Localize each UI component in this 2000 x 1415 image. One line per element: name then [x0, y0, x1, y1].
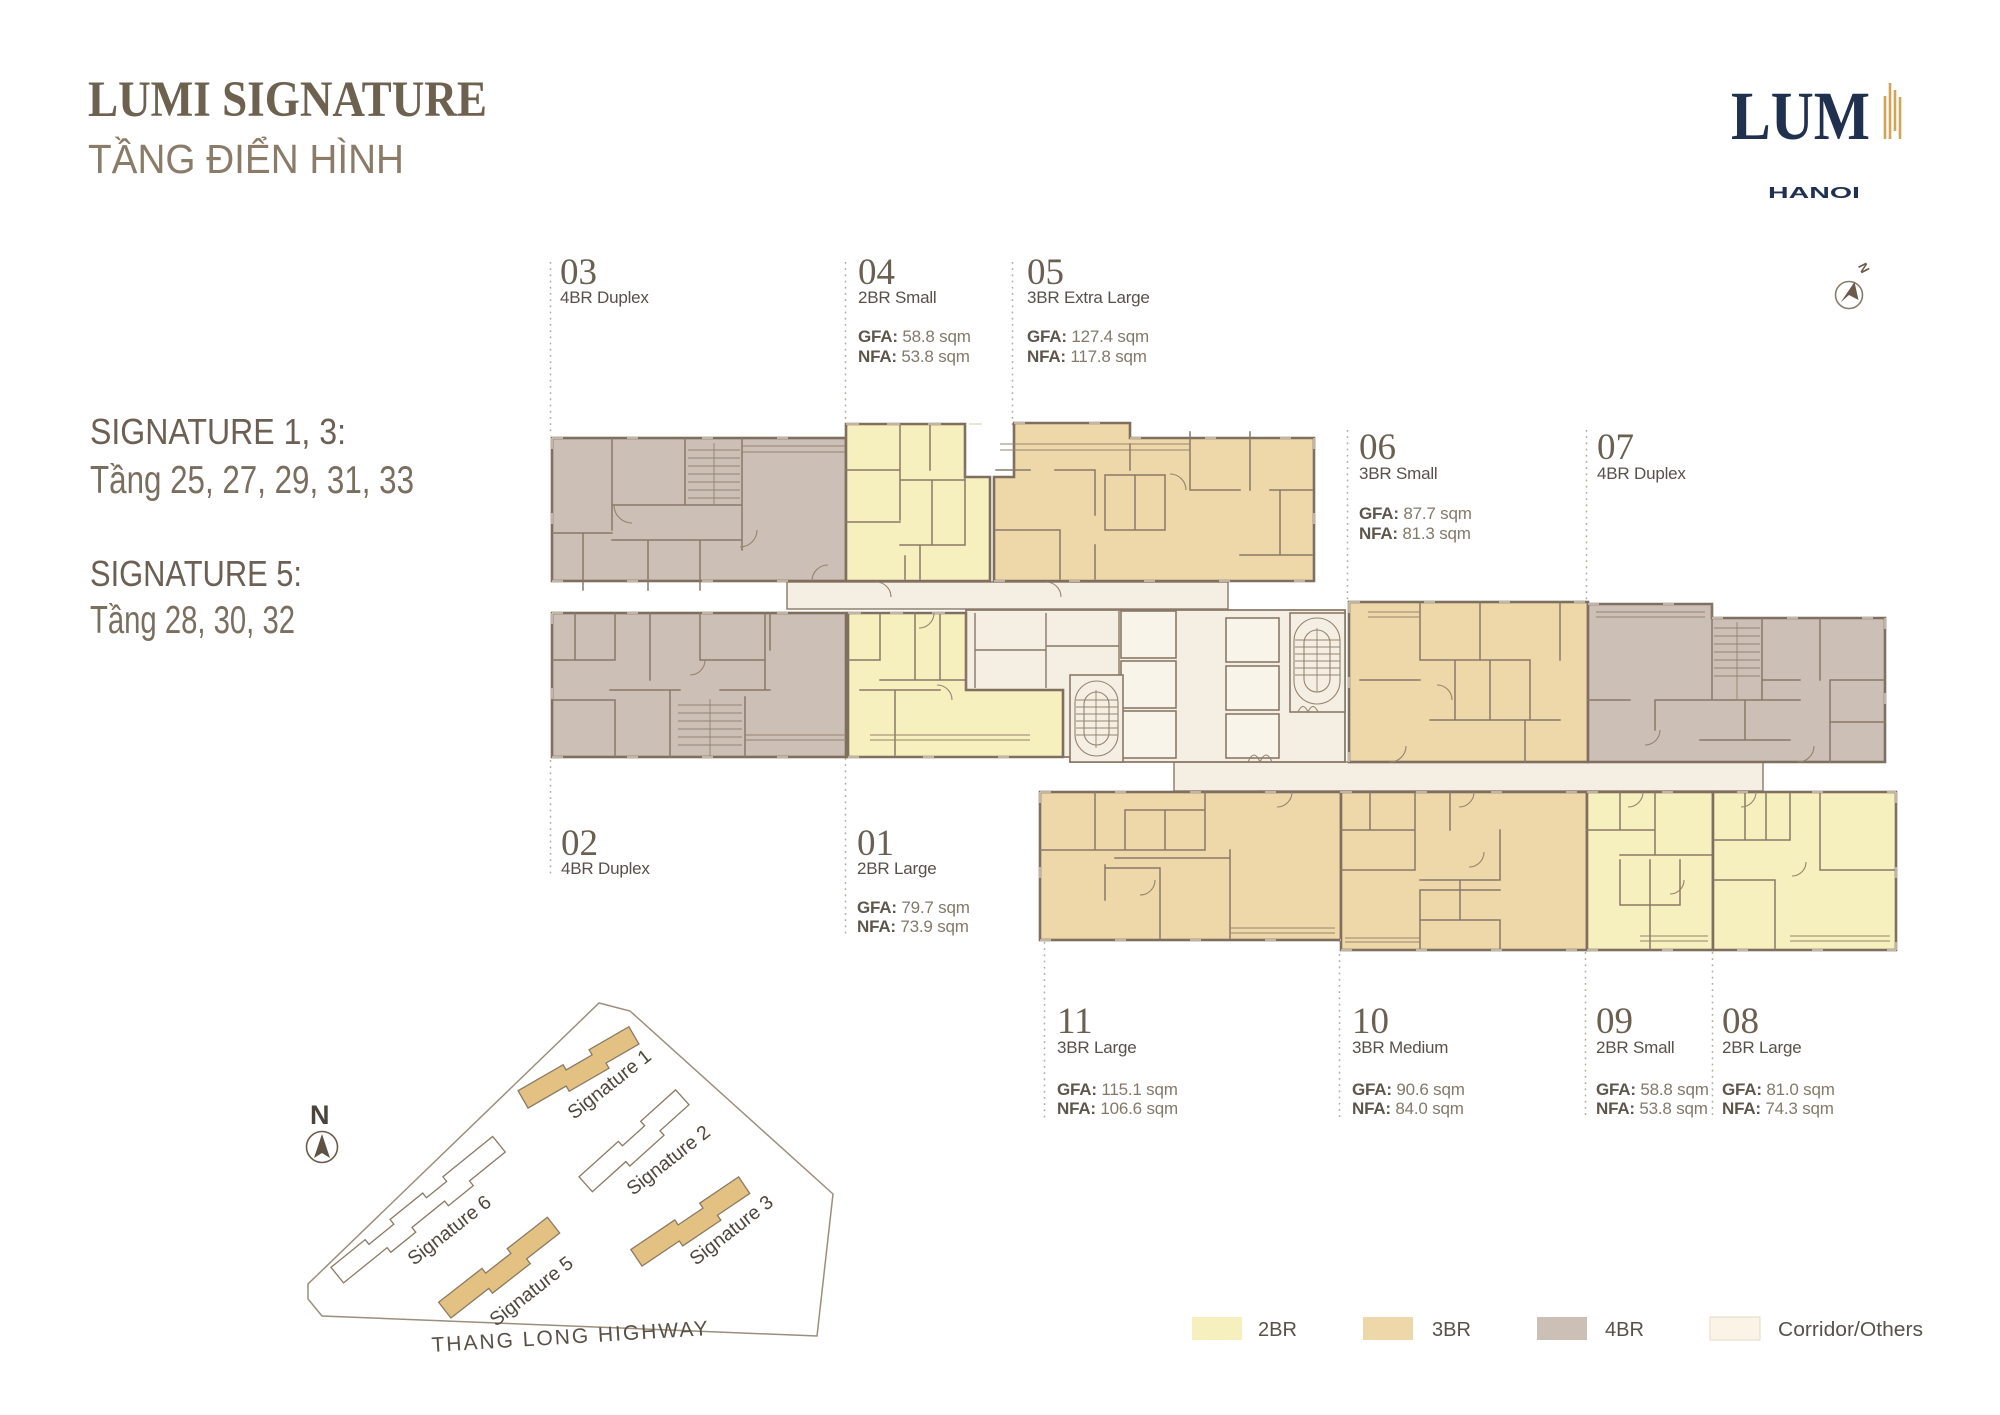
svg-text:NFA: 53.8 sqm: NFA: 53.8 sqm: [858, 347, 970, 366]
svg-text:GFA: 127.4 sqm: GFA: 127.4 sqm: [1027, 327, 1149, 346]
svg-text:01: 01: [857, 823, 894, 864]
svg-text:4BR Duplex: 4BR Duplex: [561, 859, 650, 878]
svg-text:04: 04: [858, 252, 895, 293]
svg-text:4BR: 4BR: [1605, 1319, 1644, 1341]
svg-text:SIGNATURE 1, 3:: SIGNATURE 1, 3:: [90, 411, 346, 452]
svg-text:2BR Small: 2BR Small: [1596, 1038, 1675, 1057]
svg-text:TẦNG ĐIỂN HÌNH: TẦNG ĐIỂN HÌNH: [88, 135, 404, 182]
svg-text:GFA: 90.6 sqm: GFA: 90.6 sqm: [1352, 1080, 1465, 1099]
svg-text:3BR Extra Large: 3BR Extra Large: [1027, 288, 1150, 307]
svg-text:Tầng 28, 30, 32: Tầng 28, 30, 32: [90, 599, 295, 642]
svg-text:08: 08: [1722, 1001, 1759, 1042]
svg-text:NFA: 106.6 sqm: NFA: 106.6 sqm: [1057, 1099, 1178, 1118]
svg-text:10: 10: [1352, 1001, 1389, 1042]
svg-text:GFA: 81.0 sqm: GFA: 81.0 sqm: [1722, 1080, 1835, 1099]
svg-text:06: 06: [1359, 427, 1396, 468]
svg-text:07: 07: [1597, 427, 1634, 468]
svg-text:3BR Medium: 3BR Medium: [1352, 1038, 1448, 1057]
svg-text:09: 09: [1596, 1001, 1633, 1042]
svg-text:NFA: 53.8 sqm: NFA: 53.8 sqm: [1596, 1099, 1708, 1118]
svg-text:GFA: 115.1 sqm: GFA: 115.1 sqm: [1057, 1080, 1178, 1099]
svg-text:Tầng 25, 27, 29, 31, 33: Tầng 25, 27, 29, 31, 33: [90, 459, 414, 502]
svg-text:NFA: 84.0 sqm: NFA: 84.0 sqm: [1352, 1099, 1464, 1118]
svg-text:4BR Duplex: 4BR Duplex: [560, 288, 649, 307]
svg-text:N: N: [310, 1100, 330, 1130]
svg-text:NFA: 81.3 sqm: NFA: 81.3 sqm: [1359, 524, 1471, 543]
svg-text:05: 05: [1027, 252, 1064, 293]
svg-text:4BR Duplex: 4BR Duplex: [1597, 464, 1686, 483]
svg-text:LUM: LUM: [1731, 78, 1870, 154]
svg-text:03: 03: [560, 252, 597, 293]
svg-text:2BR: 2BR: [1258, 1319, 1297, 1341]
svg-text:2BR Large: 2BR Large: [857, 859, 936, 878]
svg-text:2BR Large: 2BR Large: [1722, 1038, 1801, 1057]
svg-text:02: 02: [561, 823, 598, 864]
svg-text:3BR Small: 3BR Small: [1359, 464, 1438, 483]
svg-text:3BR Large: 3BR Large: [1057, 1038, 1136, 1057]
svg-text:Corridor/Others: Corridor/Others: [1778, 1319, 1923, 1341]
svg-text:GFA: 58.8 sqm: GFA: 58.8 sqm: [858, 327, 971, 346]
svg-text:3BR: 3BR: [1432, 1319, 1471, 1341]
svg-text:LUMI SIGNATURE: LUMI SIGNATURE: [88, 72, 487, 128]
svg-text:NFA: 74.3 sqm: NFA: 74.3 sqm: [1722, 1099, 1834, 1118]
svg-text:SIGNATURE 5:: SIGNATURE 5:: [90, 553, 302, 594]
svg-text:2BR Small: 2BR Small: [858, 288, 937, 307]
svg-text:11: 11: [1057, 1001, 1093, 1042]
svg-text:GFA: 58.8 sqm: GFA: 58.8 sqm: [1596, 1080, 1709, 1099]
svg-text:GFA: 79.7 sqm: GFA: 79.7 sqm: [857, 898, 970, 917]
svg-text:NFA: 117.8 sqm: NFA: 117.8 sqm: [1027, 347, 1147, 366]
svg-text:GFA: 87.7 sqm: GFA: 87.7 sqm: [1359, 504, 1472, 523]
svg-text:NFA: 73.9 sqm: NFA: 73.9 sqm: [857, 917, 969, 936]
svg-text:HANOI: HANOI: [1768, 185, 1860, 202]
